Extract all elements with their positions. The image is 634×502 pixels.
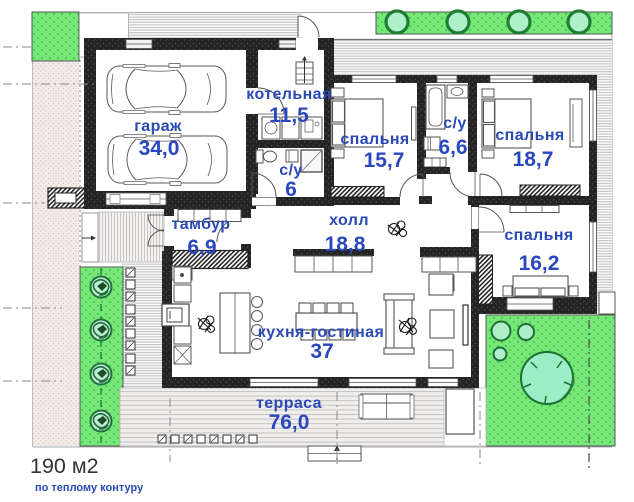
svg-text:по теплому контуру: по теплому контуру <box>35 482 144 494</box>
svg-text:6,6: 6,6 <box>438 136 467 159</box>
svg-text:6,9: 6,9 <box>187 236 216 259</box>
svg-text:кухня-гостиная: кухня-гостиная <box>258 324 384 341</box>
svg-text:спальня: спальня <box>504 227 573 244</box>
svg-text:16,2: 16,2 <box>519 252 560 275</box>
svg-text:11,5: 11,5 <box>269 104 309 127</box>
svg-text:190 м2: 190 м2 <box>30 454 99 478</box>
svg-text:15,7: 15,7 <box>364 149 405 172</box>
svg-text:холл: холл <box>329 212 369 229</box>
svg-text:76,0: 76,0 <box>269 411 310 434</box>
svg-text:тамбур: тамбур <box>172 216 231 233</box>
svg-text:37: 37 <box>310 340 333 363</box>
svg-text:терраса: терраса <box>256 395 322 412</box>
svg-text:спальня: спальня <box>495 127 564 144</box>
svg-text:34,0: 34,0 <box>139 137 180 160</box>
svg-text:котельная: котельная <box>246 86 331 103</box>
svg-text:с/у: с/у <box>443 115 466 132</box>
svg-text:18,8: 18,8 <box>325 233 366 256</box>
svg-text:6: 6 <box>285 178 297 201</box>
svg-text:с/у: с/у <box>279 162 302 179</box>
svg-text:гараж: гараж <box>134 118 182 135</box>
svg-text:18,7: 18,7 <box>513 148 554 171</box>
svg-text:спальня: спальня <box>340 131 409 148</box>
